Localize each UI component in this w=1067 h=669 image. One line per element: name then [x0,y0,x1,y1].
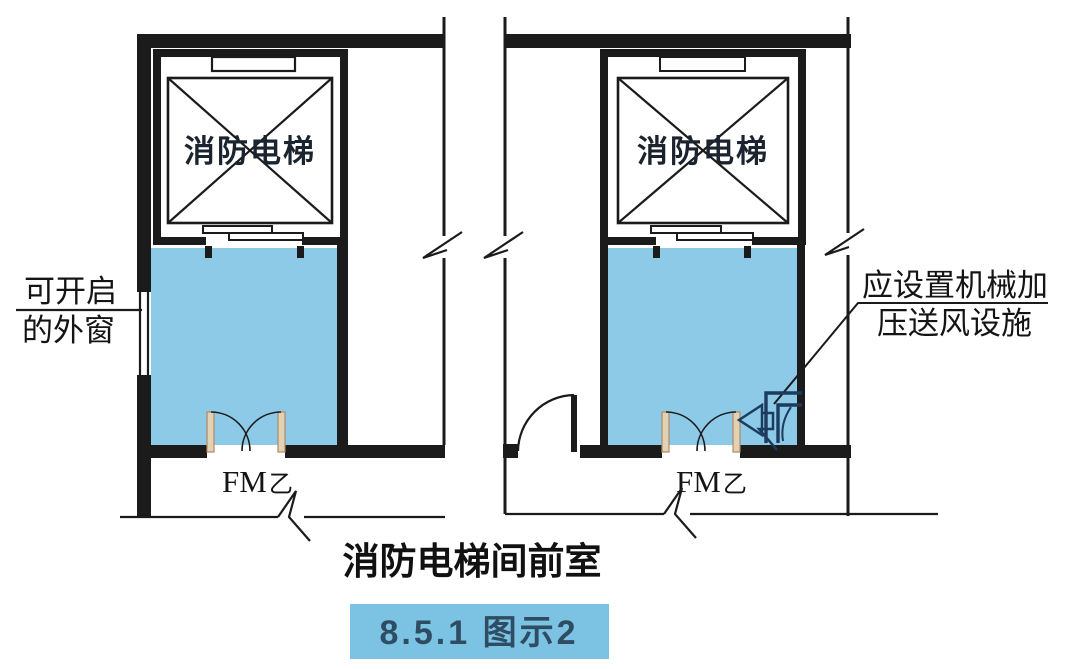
bottom-wall-right-seg [285,445,445,458]
front-room-right-wall [797,245,805,445]
top-wall [504,34,851,48]
corridor-single-door [518,395,577,452]
door-leaf [571,395,577,452]
figure-number-badge: 8.5.1 图示2 [350,604,609,659]
elevator-label: 消防电梯 [184,134,316,169]
mech-note-line1: 应设置机械加 [862,268,1048,303]
figure-title: 消防电梯间前室 [343,540,602,582]
elevator-label: 消防电梯 [637,134,769,169]
door-swing-arc [518,395,574,451]
front-room-left-wall [600,245,608,445]
bottom-wall-left-seg [137,445,207,458]
figure-number: 8.5.1 图示2 [380,614,579,652]
fm-door-label: FM乙 [222,464,293,499]
window-annotation: 可开启 的外窗 [16,274,142,348]
bottom-wall-left-seg [580,445,662,458]
right-wall-with-break [825,17,864,516]
mech-annotation: 应设置机械加 压送风设施 [862,268,1048,341]
left-wall-with-break [484,17,523,514]
window-note-line2: 的外窗 [22,313,115,348]
window-note-line1: 可开启 [24,274,117,309]
front-room-left [151,248,337,445]
door-jamb [503,444,518,458]
elevator-shaft: 消防电梯 [600,49,806,258]
front-room-right-wall [337,245,348,445]
openable-window [140,292,148,375]
front-room-right [608,248,797,445]
top-wall [137,34,445,48]
corridor-line-with-break [505,488,938,538]
floor-plan-diagram: 消防电梯 FM乙 [0,0,1067,669]
mech-note-line2: 压送风设施 [877,306,1032,341]
left-plan: 消防电梯 FM乙 [120,17,462,541]
break-mark-icon [825,229,864,255]
corridor-line-with-break [120,491,445,541]
bottom-wall-right-seg [740,445,851,458]
exterior-wall-left-upper [137,34,151,292]
corridor-wall-with-break [423,17,462,445]
elevator-shaft: 消防电梯 [153,49,348,258]
fm-door-label: FM乙 [676,464,747,499]
fire-elevator-front-room-figure: 消防电梯 FM乙 [0,0,1067,669]
counterweight [660,57,745,71]
